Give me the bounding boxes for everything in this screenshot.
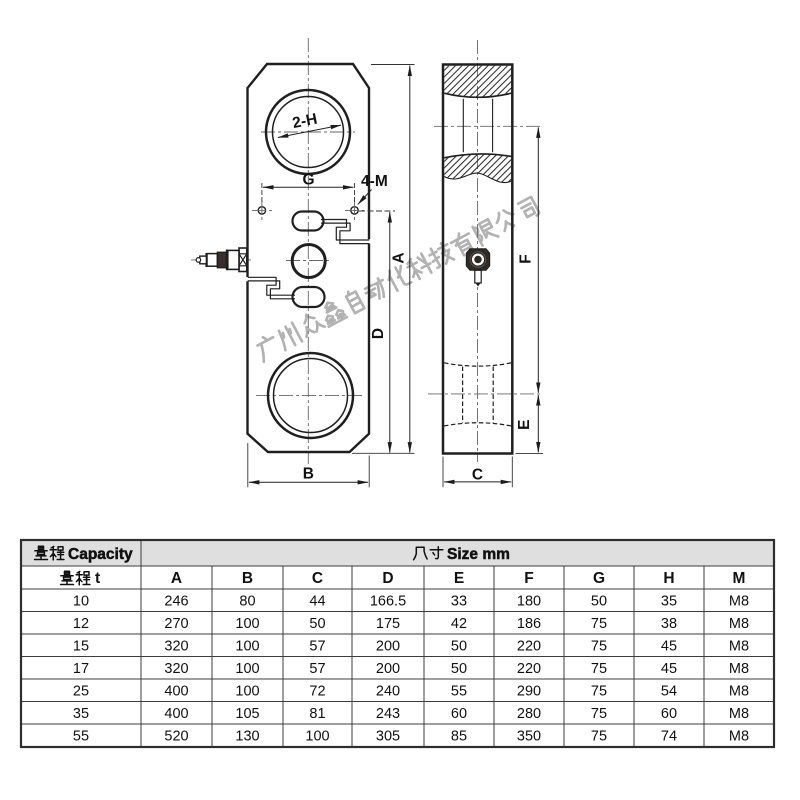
svg-text:C: C [472, 467, 483, 484]
svg-text:t: t [95, 570, 100, 587]
svg-text:Capacity: Capacity [68, 546, 133, 563]
svg-text:4-M: 4-M [361, 173, 388, 190]
svg-text:F: F [518, 254, 535, 263]
svg-text:G: G [302, 172, 314, 189]
svg-text:D: D [370, 328, 387, 339]
svg-text:A: A [391, 252, 408, 263]
svg-text:E: E [516, 420, 533, 430]
svg-text:B: B [303, 466, 314, 483]
svg-text:Size mm: Size mm [447, 546, 510, 563]
